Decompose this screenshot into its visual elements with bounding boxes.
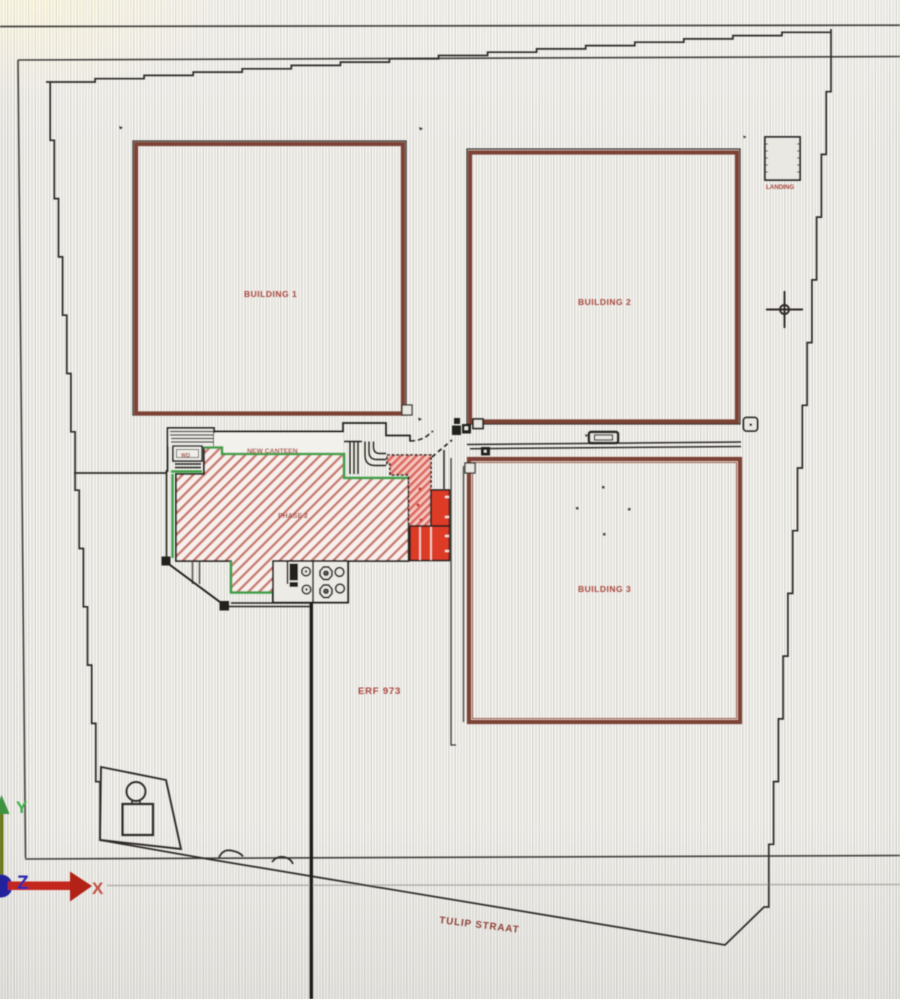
svg-text:ERF 973: ERF 973 <box>358 686 401 697</box>
svg-text:PHASE 2: PHASE 2 <box>278 513 308 520</box>
svg-text:X: X <box>92 879 104 898</box>
svg-text:BUILDING 2: BUILDING 2 <box>578 297 631 307</box>
svg-text:WD: WD <box>181 453 190 459</box>
svg-text:TULIP STRAAT: TULIP STRAAT <box>439 915 520 936</box>
svg-text:BUILDING 3: BUILDING 3 <box>578 584 631 594</box>
svg-text:Y: Y <box>16 798 28 817</box>
svg-text:NEW CANTEEN: NEW CANTEEN <box>247 448 298 455</box>
svg-text:BUILDING 1: BUILDING 1 <box>244 289 297 299</box>
svg-text:Z: Z <box>17 873 29 894</box>
svg-text:LANDING: LANDING <box>766 184 794 191</box>
